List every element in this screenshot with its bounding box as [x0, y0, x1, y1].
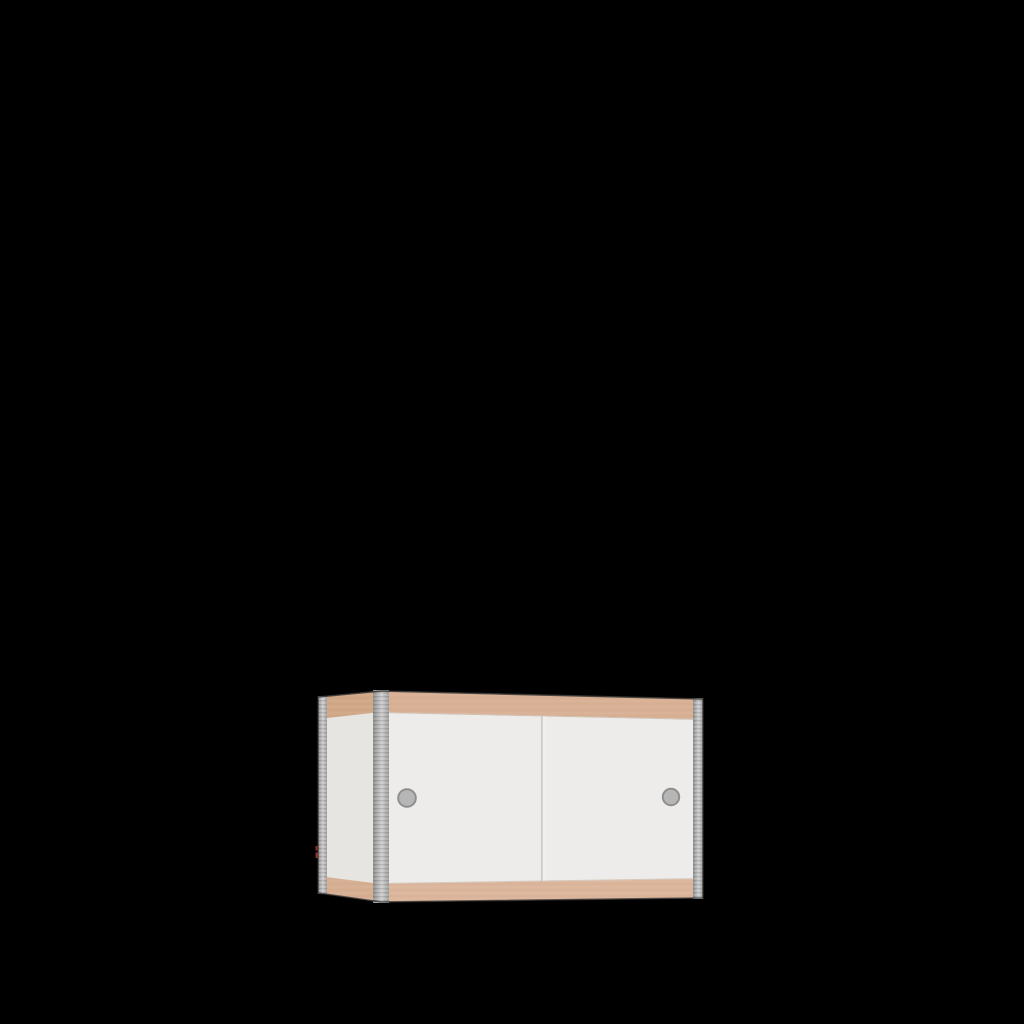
door-divider-highlight — [543, 716, 546, 881]
rail-front-left-texture — [373, 690, 389, 903]
aluminum-rail-back-left — [318, 696, 327, 894]
red-render-artifact-upper — [316, 846, 318, 851]
product-render-stage — [0, 0, 1024, 1024]
rail-right-texture — [693, 698, 703, 899]
door-handle-hole-right — [663, 789, 679, 805]
red-render-artifact-lower — [316, 853, 319, 859]
door-handle-hole-left — [398, 789, 416, 807]
cabinet-side-panel — [318, 691, 381, 902]
aluminum-rail-right — [693, 698, 703, 899]
cabinet-render-canvas — [0, 0, 1024, 1024]
door-divider-gap — [541, 716, 543, 881]
cabinet — [316, 690, 704, 903]
aluminum-rail-front-left — [373, 690, 389, 903]
rail-back-left-texture — [318, 696, 327, 894]
